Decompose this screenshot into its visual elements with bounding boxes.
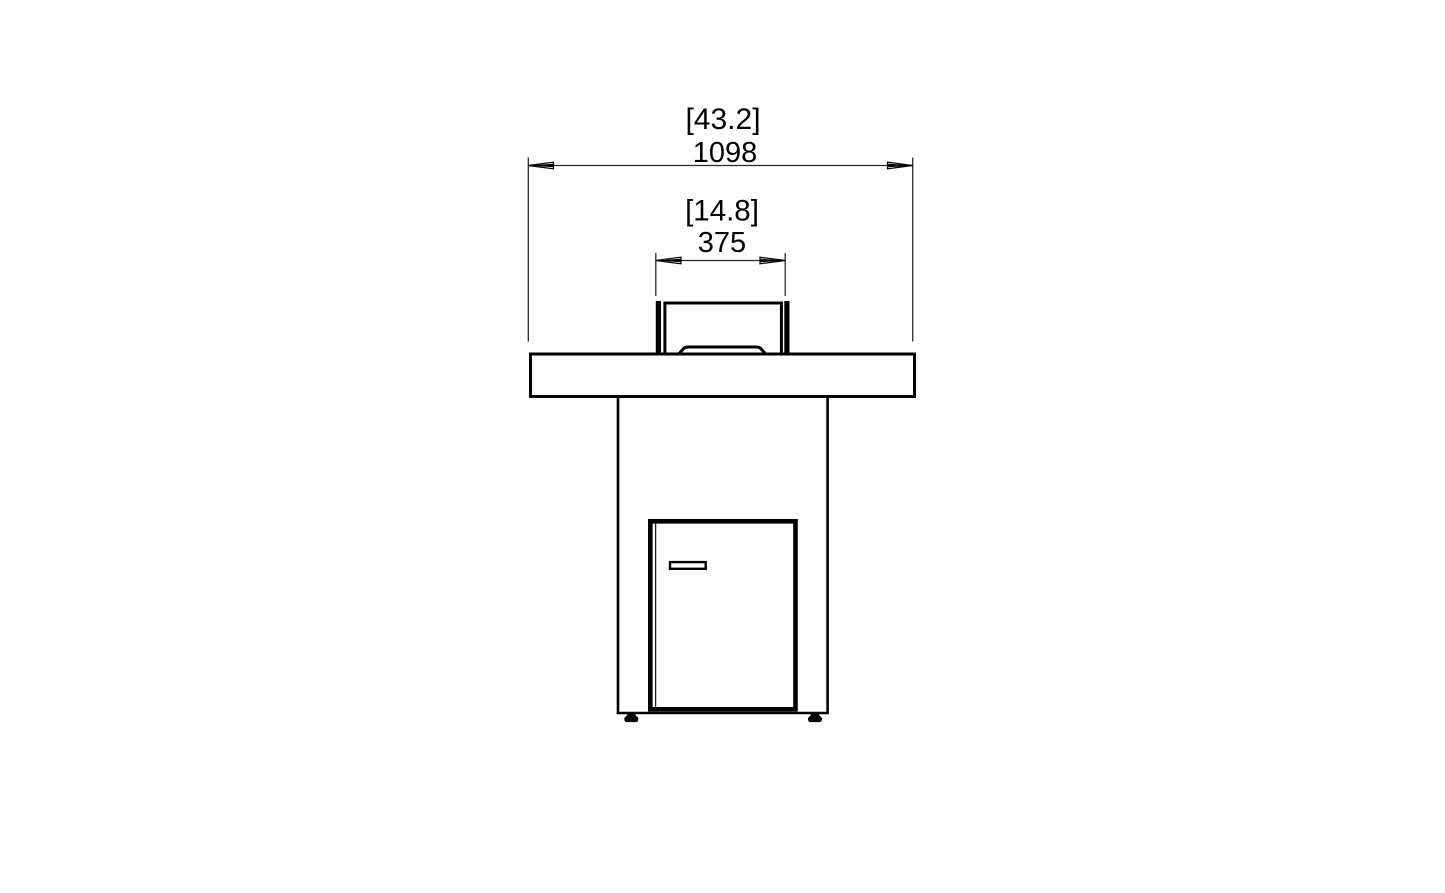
svg-text:[14.8]: [14.8] xyxy=(685,195,759,228)
svg-text:[43.2]: [43.2] xyxy=(685,103,760,136)
svg-text:1098: 1098 xyxy=(693,137,758,169)
svg-text:375: 375 xyxy=(698,227,746,259)
